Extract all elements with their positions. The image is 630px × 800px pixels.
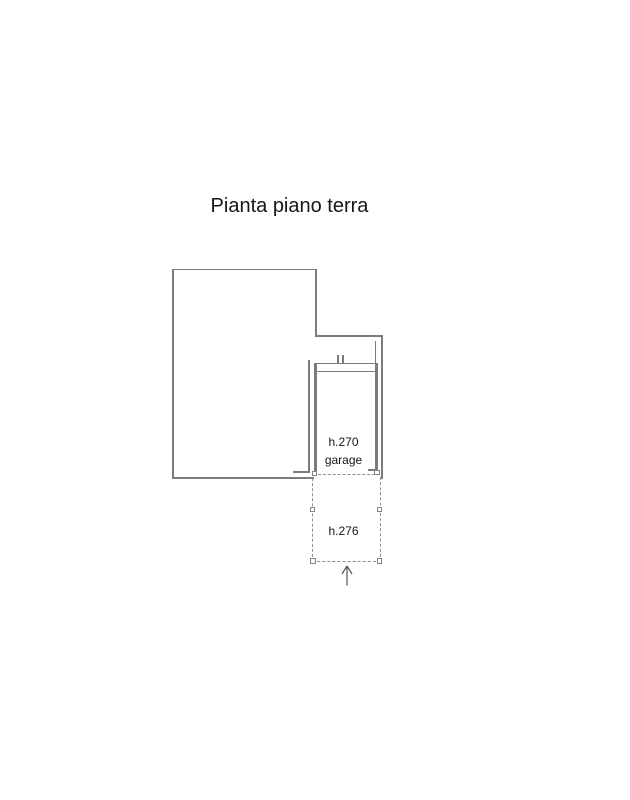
- wall-opening-jamb-right: [342, 355, 344, 364]
- wall-wing-inner-right: [375, 341, 376, 364]
- carport-pillar-bottom-left: [310, 558, 316, 564]
- wall-opening-jamb-left: [337, 355, 339, 364]
- garage-right-wall: [375, 363, 378, 471]
- garage-top-wall-inner-line: [316, 371, 378, 373]
- garage-height-label: h.270: [313, 435, 374, 449]
- floor-plan-page: Pianta piano terra h.270 gara: [0, 0, 630, 800]
- garage-room-label: garage: [312, 453, 375, 467]
- plan-title: Pianta piano terra: [159, 195, 420, 218]
- garage-door-dashed-line: [318, 474, 375, 475]
- carport-left-dashed-line: [312, 478, 313, 562]
- wall-outline-left: [172, 269, 174, 480]
- main-room-right-wall: [308, 360, 309, 473]
- carport-pillar-mid-left: [310, 507, 316, 513]
- wall-outline-step: [315, 335, 382, 337]
- carport-pillar-top-right: [374, 470, 380, 476]
- carport-height-label: h.276: [313, 524, 374, 538]
- wall-outline-upper-right: [315, 269, 317, 337]
- carport-pillar-bottom-right: [377, 558, 383, 564]
- carport-right-dashed-line: [380, 477, 381, 563]
- wall-outline-right: [381, 335, 383, 479]
- wall-outline-bottom: [172, 477, 314, 479]
- entrance-arrow-icon: [337, 564, 357, 588]
- main-room-wall-foot: [293, 471, 310, 472]
- carport-pillar-mid-right: [377, 507, 383, 513]
- garage-top-wall-outer-line: [316, 363, 378, 365]
- carport-bottom-dashed-line: [312, 561, 381, 562]
- carport-pillar-top-left: [312, 471, 318, 477]
- wall-outline-top: [172, 269, 317, 271]
